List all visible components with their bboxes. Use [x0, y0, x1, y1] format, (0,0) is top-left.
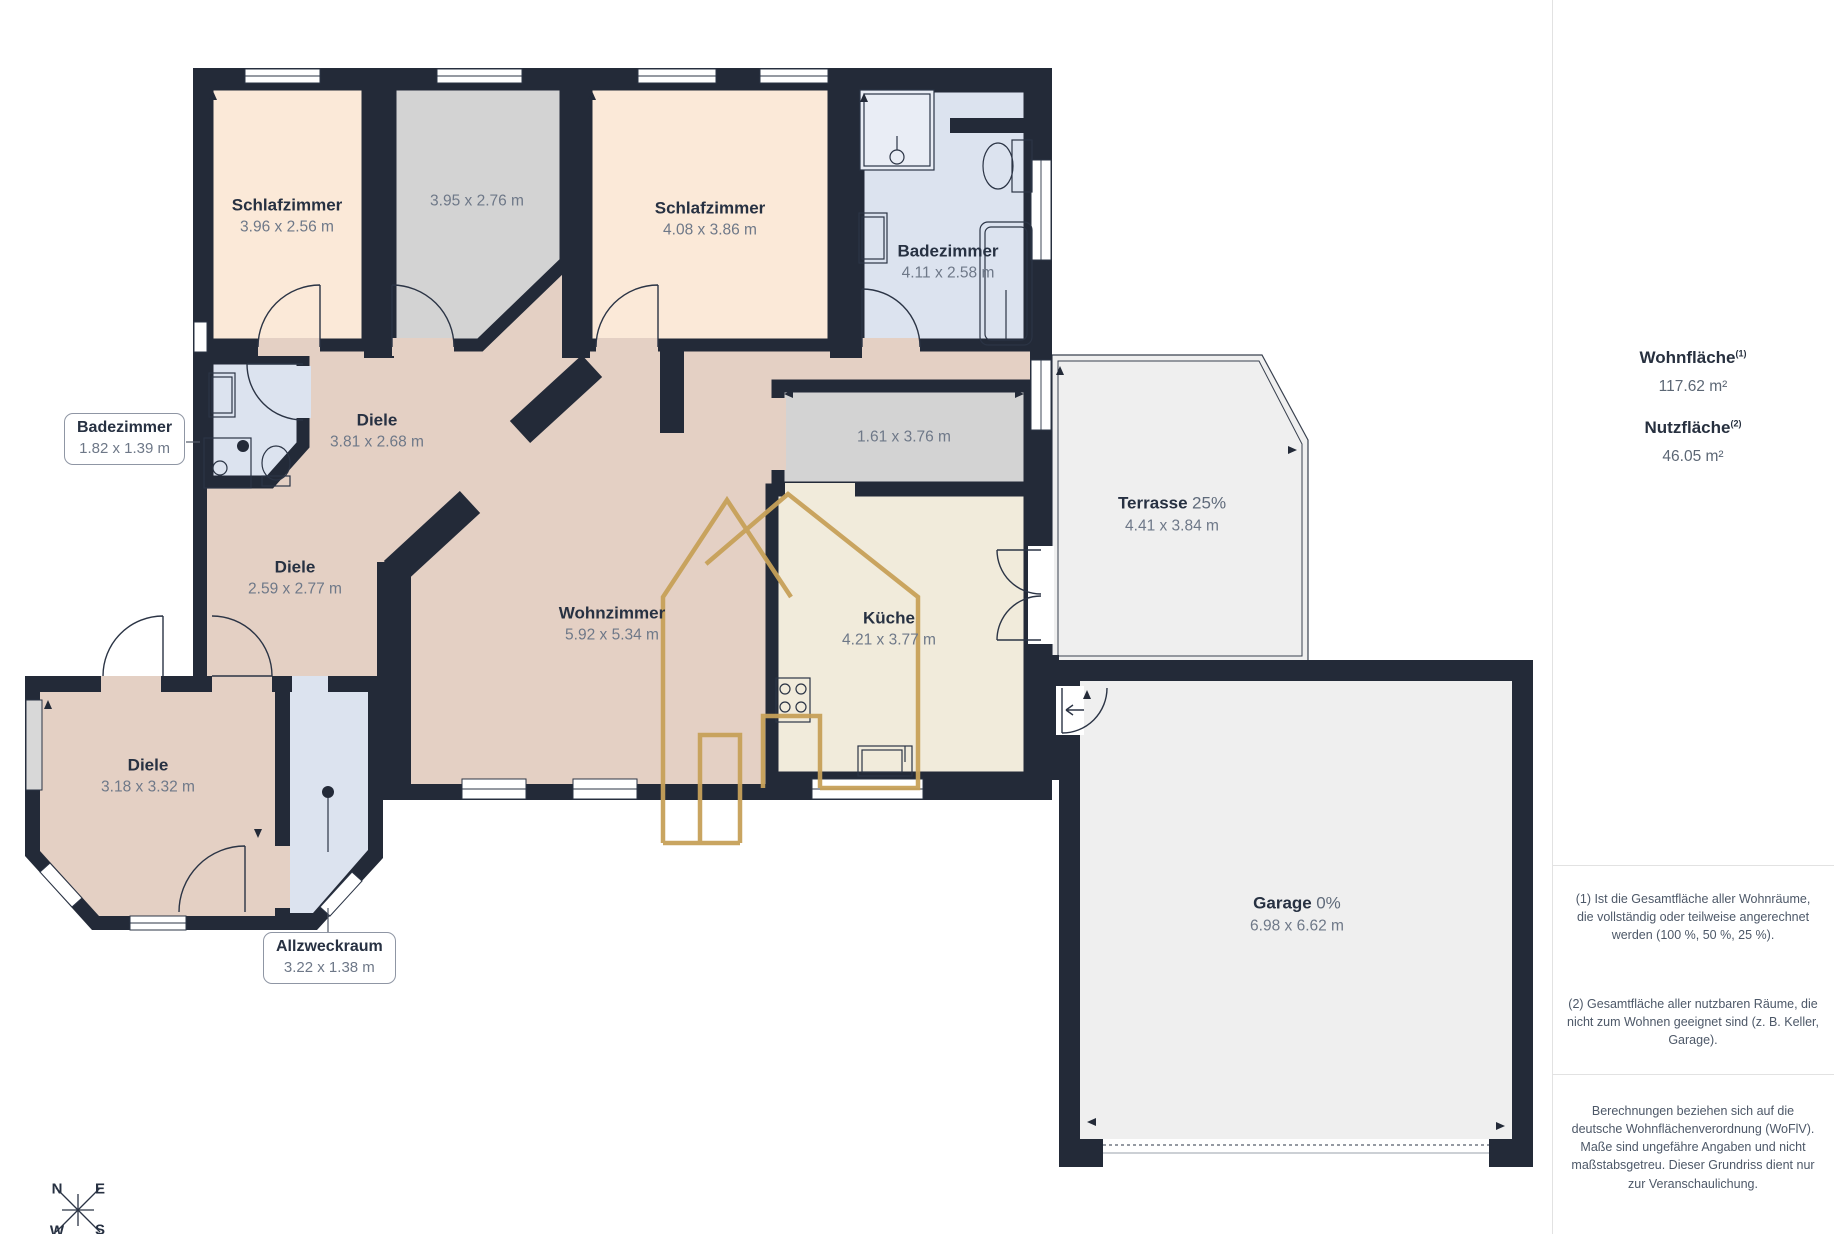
nutzflaeche-label: Nutzfläche: [1645, 418, 1731, 437]
terrasse-area: [1052, 355, 1308, 662]
sidebar-rule-1: [1552, 865, 1834, 866]
room-schlafzimmer-2: [586, 84, 834, 345]
wohnflaeche-heading: Wohnfläche(1): [1552, 348, 1834, 368]
room-mitte-grau: [778, 386, 1030, 488]
garage-structure: [1059, 660, 1533, 1167]
floorplan-page: Schlafzimmer 3.96 x 2.56 m 3.95 x 2.76 m…: [0, 0, 1834, 1234]
nutzflaeche-footnote-ref: (2): [1730, 418, 1741, 428]
room-name: Badezimmer: [77, 417, 172, 439]
room-diele-3: [40, 692, 275, 916]
nutzflaeche-heading: Nutzfläche(2): [1552, 418, 1834, 438]
wohnflaeche-footnote-ref: (1): [1736, 348, 1747, 358]
compass-icon: [56, 1188, 100, 1232]
sidebar-divider: [1552, 0, 1553, 1234]
labelbox-allzweckraum: Allzweckraum 3.22 x 1.38 m: [263, 932, 396, 984]
room-kueche: [772, 490, 1030, 778]
wohnflaeche-label: Wohnfläche: [1639, 348, 1735, 367]
floorplan-canvas: [0, 0, 1834, 1234]
room-schlafzimmer-1: [207, 84, 368, 345]
footnote-2: (2) Gesamtfläche aller nutzbaren Räume, …: [1567, 995, 1819, 1049]
nutzflaeche-value: 46.05 m²: [1552, 448, 1834, 466]
room-dims: 3.22 x 1.38 m: [276, 958, 383, 978]
labelbox-badezimmer-klein: Badezimmer 1.82 x 1.39 m: [64, 413, 185, 465]
footnote-1: (1) Ist die Gesamtfläche aller Wohnräume…: [1567, 890, 1819, 944]
area-summary: Wohnfläche(1) 117.62 m² Nutzfläche(2) 46…: [1552, 348, 1834, 488]
disclaimer: Berechnungen beziehen sich auf die deuts…: [1567, 1102, 1819, 1193]
sidebar-rule-2: [1552, 1074, 1834, 1075]
wohnflaeche-value: 117.62 m²: [1552, 378, 1834, 396]
room-name: Allzweckraum: [276, 936, 383, 958]
room-dims: 1.82 x 1.39 m: [77, 439, 172, 459]
